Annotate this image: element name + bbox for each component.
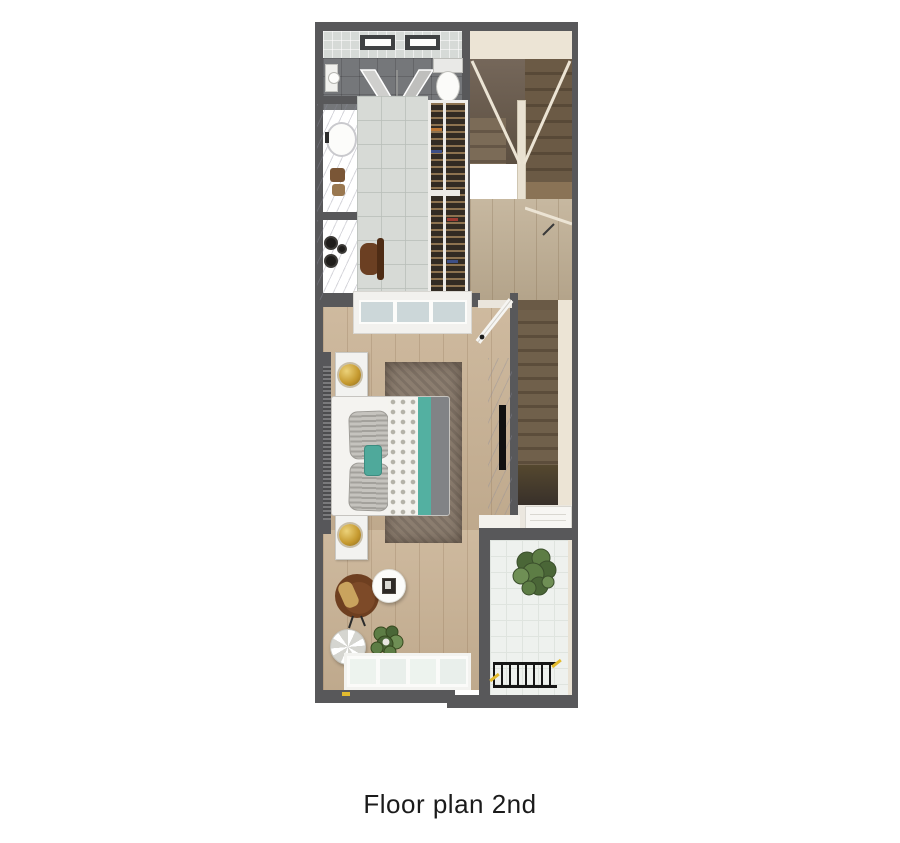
gold-table-lamp: [339, 364, 361, 386]
stairwell-shadow: [518, 465, 558, 505]
built-in-cabinet: [353, 291, 472, 334]
accent-pillow: [364, 445, 382, 476]
teal-blanket: [418, 397, 431, 515]
wardrobe-shelf: [430, 190, 460, 196]
wardrobe-divider: [443, 102, 446, 298]
cabinet-glass-pane: [395, 300, 431, 324]
wardrobe-item: [431, 150, 442, 153]
bathroom-recessed-light: [360, 35, 395, 50]
patterned-throw: [388, 397, 418, 515]
wall-light-marker: [342, 692, 350, 696]
vanity-accessory: [330, 168, 345, 182]
toilet-bowl: [436, 71, 460, 102]
bed: [331, 396, 450, 516]
stair-railings: [470, 59, 572, 201]
faucet: [325, 132, 329, 143]
wall-tv: [499, 405, 506, 470]
stairwell-side-wall: [558, 300, 572, 528]
wall-balcony-top: [479, 528, 578, 540]
bedroom-door-open: [475, 298, 515, 348]
wall-top: [315, 22, 578, 31]
cabinet-glass-pane: [359, 300, 395, 324]
wall-stub: [317, 212, 357, 220]
dressing-table-jar: [324, 254, 338, 268]
vanity-sink: [326, 122, 357, 157]
wall-bottom-bedroom: [315, 690, 455, 703]
balcony-threshold: [479, 515, 520, 528]
wall-stub: [317, 96, 357, 104]
bathroom-recessed-light: [405, 35, 440, 50]
drying-rack: [493, 662, 557, 688]
toilet-paper-roll: [328, 72, 340, 84]
wall-bottom-balcony: [447, 695, 578, 708]
dressing-table-jar: [337, 244, 347, 254]
floor-plan-2nd: [315, 22, 578, 708]
stairwell-top: [518, 300, 558, 310]
gold-table-lamp: [339, 524, 361, 546]
wardrobe-item: [447, 260, 458, 263]
stairwell-treads: [518, 310, 558, 465]
caption: Floor plan 2nd: [0, 789, 900, 820]
wardrobe-item: [447, 218, 458, 221]
wardrobe-item: [431, 128, 442, 131]
headboard-texture: [323, 366, 331, 520]
floor-plan-page: Floor plan 2nd: [0, 0, 900, 843]
bedroom-windows: [344, 653, 471, 690]
landing-cabinet: [525, 506, 572, 529]
balcony-plant: [503, 544, 563, 604]
stair-hall-landing: [470, 31, 572, 59]
table-frame: [382, 578, 396, 594]
stair-lower-railing: [525, 199, 572, 243]
cabinet-glass-pane: [431, 300, 467, 324]
wall-balcony-left: [479, 540, 490, 695]
vanity-accessory: [332, 184, 345, 196]
dressing-chair-back: [377, 238, 384, 280]
gray-duvet: [431, 397, 450, 515]
dressing-table-jar: [324, 236, 338, 250]
wall-right: [572, 22, 578, 708]
